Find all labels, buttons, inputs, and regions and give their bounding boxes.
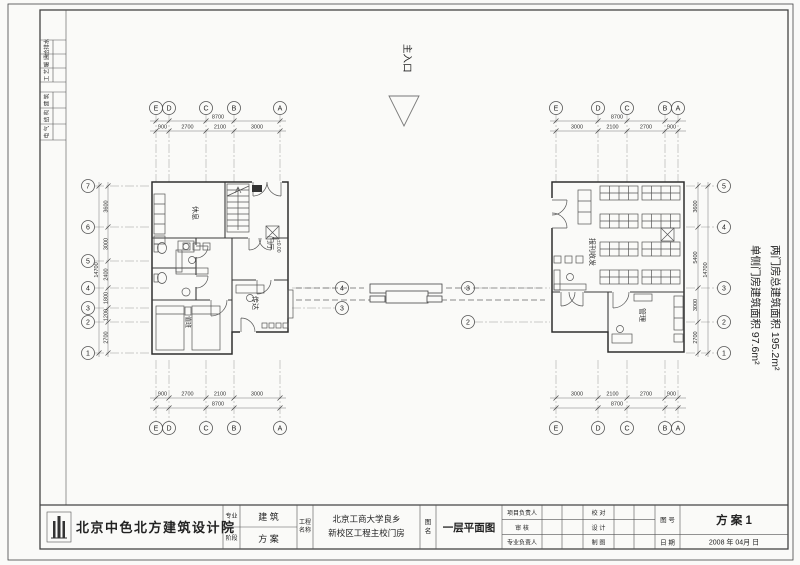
dim-label: 1800 [104,292,110,304]
grid-bubble-label: B [232,106,237,113]
main-entrance-label: 主入口 [401,44,413,73]
grid-bubbles-bottom: E D C B A [550,422,685,435]
grid-bubble-label: D [595,426,600,433]
grid-bubble-label: 3 [722,286,726,293]
project-label: 名称 [299,526,311,534]
grid-bubbles-side: 7 6 5 4 3 2 1 [82,180,95,360]
dim-total: 8700 [212,115,224,121]
grid-bubble-label: C [624,426,629,433]
grid-bubbles-side: 5 4 3 2 1 [718,180,731,360]
grid-bubble-label: E [554,106,559,113]
dim-label: 3000 [571,125,583,131]
grid-bubbles-bottom: E D C B A [150,422,287,435]
role-check-label: 校 对 [592,509,606,517]
grid-bubble-label: 7 [86,184,90,191]
room-label-duty: 值班 [184,316,192,328]
dim-label: 2700 [693,331,699,343]
date-label: 日 期 [660,539,675,547]
area-note-side: 单侧门房建筑面积 97.6m² [749,245,762,365]
main-entrance-annotation: 主入口 [389,44,419,126]
grid-bubble-label: A [278,106,283,113]
signoff-process-label: 工 艺 [44,68,51,81]
company-logo [47,512,71,542]
role-lead-label: 专业负责人 [507,539,537,547]
sheet-no-label: 图 号 [660,516,675,524]
grid-bubble-label: 3 [466,286,470,293]
room-label-reception: 传达 [251,296,260,310]
grid-bubble-label: B [663,106,668,113]
signoff-hvac-label: 暖 通 [43,54,51,67]
grid-bubble-label: 1 [86,351,90,358]
signoff-plumbing-label: 给排水 [43,38,51,55]
plan-drawing: 给排水 暖 通 工 艺 建 筑 结 构 电 气 主入口 8700 900 270… [0,0,800,565]
room-label-office: 管理 [638,308,647,322]
drawing-name-label: 图 [425,518,432,526]
dim-label: 2700 [181,125,193,131]
dim-label: 2100 [606,392,618,398]
stage-value: 方 案 [258,533,279,544]
grid-bubble-label: D [166,106,171,113]
dim-label: 900 [667,125,676,131]
dim-label: 3000 [693,299,699,311]
gate-booth [296,284,545,303]
grid-bubble-label: C [624,106,629,113]
role-review-label: 审 核 [515,524,529,532]
dim-label: 900 [158,125,167,131]
dim-total: 14700 [94,262,100,277]
dim-label: 2100 [214,125,226,131]
grid-bubbles-inner: 4 3 [336,282,349,315]
signoff-structure-label: 结 构 [43,109,51,122]
entrance-arrow-icon [389,96,419,126]
drawing-name-label: 名 [425,526,432,535]
shaft-icon [661,228,674,241]
grid-bubble-label: A [278,426,283,433]
dim-label: 3000 [571,392,583,398]
dim-label: 3600 [104,200,110,212]
dim-total: 14700 [703,262,709,277]
grid-bubble-label: E [154,426,159,433]
grid-bubbles-inner: 3 2 [462,282,475,329]
grid-bubble-label: 4 [340,286,344,293]
company-name: 北京中色北方建筑设计院 [76,520,236,535]
project-name-line2: 新校区工程主校门房 [328,528,405,538]
role-design-label: 设 计 [592,524,606,532]
dim-total: 8700 [212,402,224,408]
grid-bubble-label: B [663,426,668,433]
grid-bubble-label: 4 [722,225,726,232]
stage-label: 阶段 [225,534,237,542]
discipline-value: 建 筑 [258,511,279,522]
dim-label: 1200 [104,309,110,321]
grid-bubble-label: B [232,426,237,433]
drawing-name: 一层平面图 [443,522,496,534]
discipline-label: 专业 [225,512,237,520]
signoff-electrical-label: 电 气 [43,125,51,138]
role-pm-label: 项目负责人 [507,509,537,517]
grid-bubble-label: 2 [466,320,470,327]
grid-bubble-label: 1 [722,351,726,358]
project-label: 工程 [299,518,311,526]
title-block: 北京中色北方建筑设计院 专业 阶段 建 筑 方 案 工程 名称 北京工商大学良乡… [40,505,788,549]
left-plan: 8700 900 2700 2100 3000 900 2700 2100 30… [82,102,349,435]
grid-bubble-label: 5 [86,259,90,266]
signoff-architecture-label: 建 筑 [43,93,51,106]
grid-bubble-label: 2 [86,320,90,327]
stair [227,184,249,232]
room-label-mail: 报刊收发 [588,238,597,266]
dim-label: 2700 [640,392,652,398]
grid-bubble-label: D [595,106,600,113]
grid-bubble-label: 3 [86,306,90,313]
project-name-line1: 北京工商大学良乡 [332,514,400,524]
right-plan-furniture [554,190,683,343]
grid-bubble-label: A [676,106,681,113]
room-label-rest: 休息 [191,206,200,220]
date-value: 2008 年 04月 日 [709,538,759,547]
dim-label: 900 [158,392,167,398]
grid-bubbles-top: E D C B A [550,102,685,115]
outer-border [8,4,793,560]
grid-bubble-label: 2 [722,320,726,327]
dim-total: 8700 [611,402,623,408]
dim-label: 2700 [640,125,652,131]
drawing-sheet: 给排水 暖 通 工 艺 建 筑 结 构 电 气 主入口 8700 900 270… [0,0,800,565]
grid-bubble-label: 5 [722,184,726,191]
equipment [252,185,262,192]
grid-bubble-label: C [203,426,208,433]
dim-label: 3000 [104,238,110,250]
room-label-hall: 门厅 [266,236,275,250]
grid-bubble-label: 4 [86,286,90,293]
room-level: ±0.00 [275,240,281,253]
dim-total: 8700 [611,115,623,121]
grid-bubble-label: E [154,106,159,113]
dim-label: 2100 [214,392,226,398]
grid-bubble-label: 3 [340,306,344,313]
grid-bubble-label: E [554,426,559,433]
dim-label: 3600 [693,200,699,212]
grid-bubble-label: C [203,106,208,113]
grid-bubble-label: 6 [86,225,90,232]
signoff-strip: 给排水 暖 通 工 艺 建 筑 结 构 电 气 [40,10,66,505]
dim-label: 3000 [251,125,263,131]
right-plan: 8700 3000 2100 2700 900 3000 2100 2700 9… [462,102,731,435]
grid-bubble-label: D [166,426,171,433]
left-plan-furniture [154,194,293,350]
role-draft-label: 制 图 [592,539,606,547]
dim-label: 900 [667,392,676,398]
sheet-no-value: 方 案 1 [716,513,752,527]
dim-label: 2700 [181,392,193,398]
dim-label: 2100 [606,125,618,131]
dim-label: 5400 [693,251,699,263]
dim-label: 3000 [251,392,263,398]
dim-label: 2700 [104,331,110,343]
dim-label: 2400 [104,268,110,280]
area-note-total: 两门房总建筑面积 195.2m² [769,245,782,371]
grid-bubble-label: A [676,426,681,433]
grid-bubbles-top: E D C B A [150,102,287,115]
